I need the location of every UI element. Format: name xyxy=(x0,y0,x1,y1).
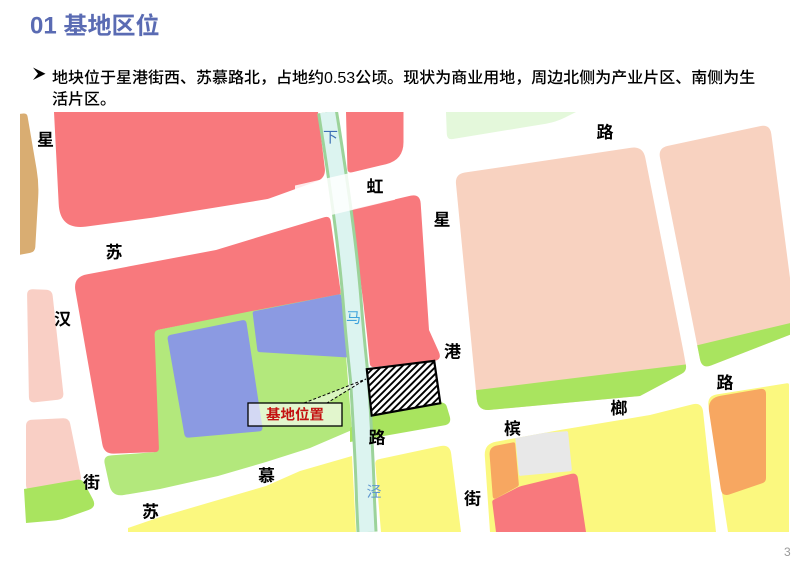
svg-text:3: 3 xyxy=(784,545,791,559)
svg-text:01: 01 xyxy=(30,13,57,40)
svg-text:0.53: 0.53 xyxy=(324,70,355,87)
